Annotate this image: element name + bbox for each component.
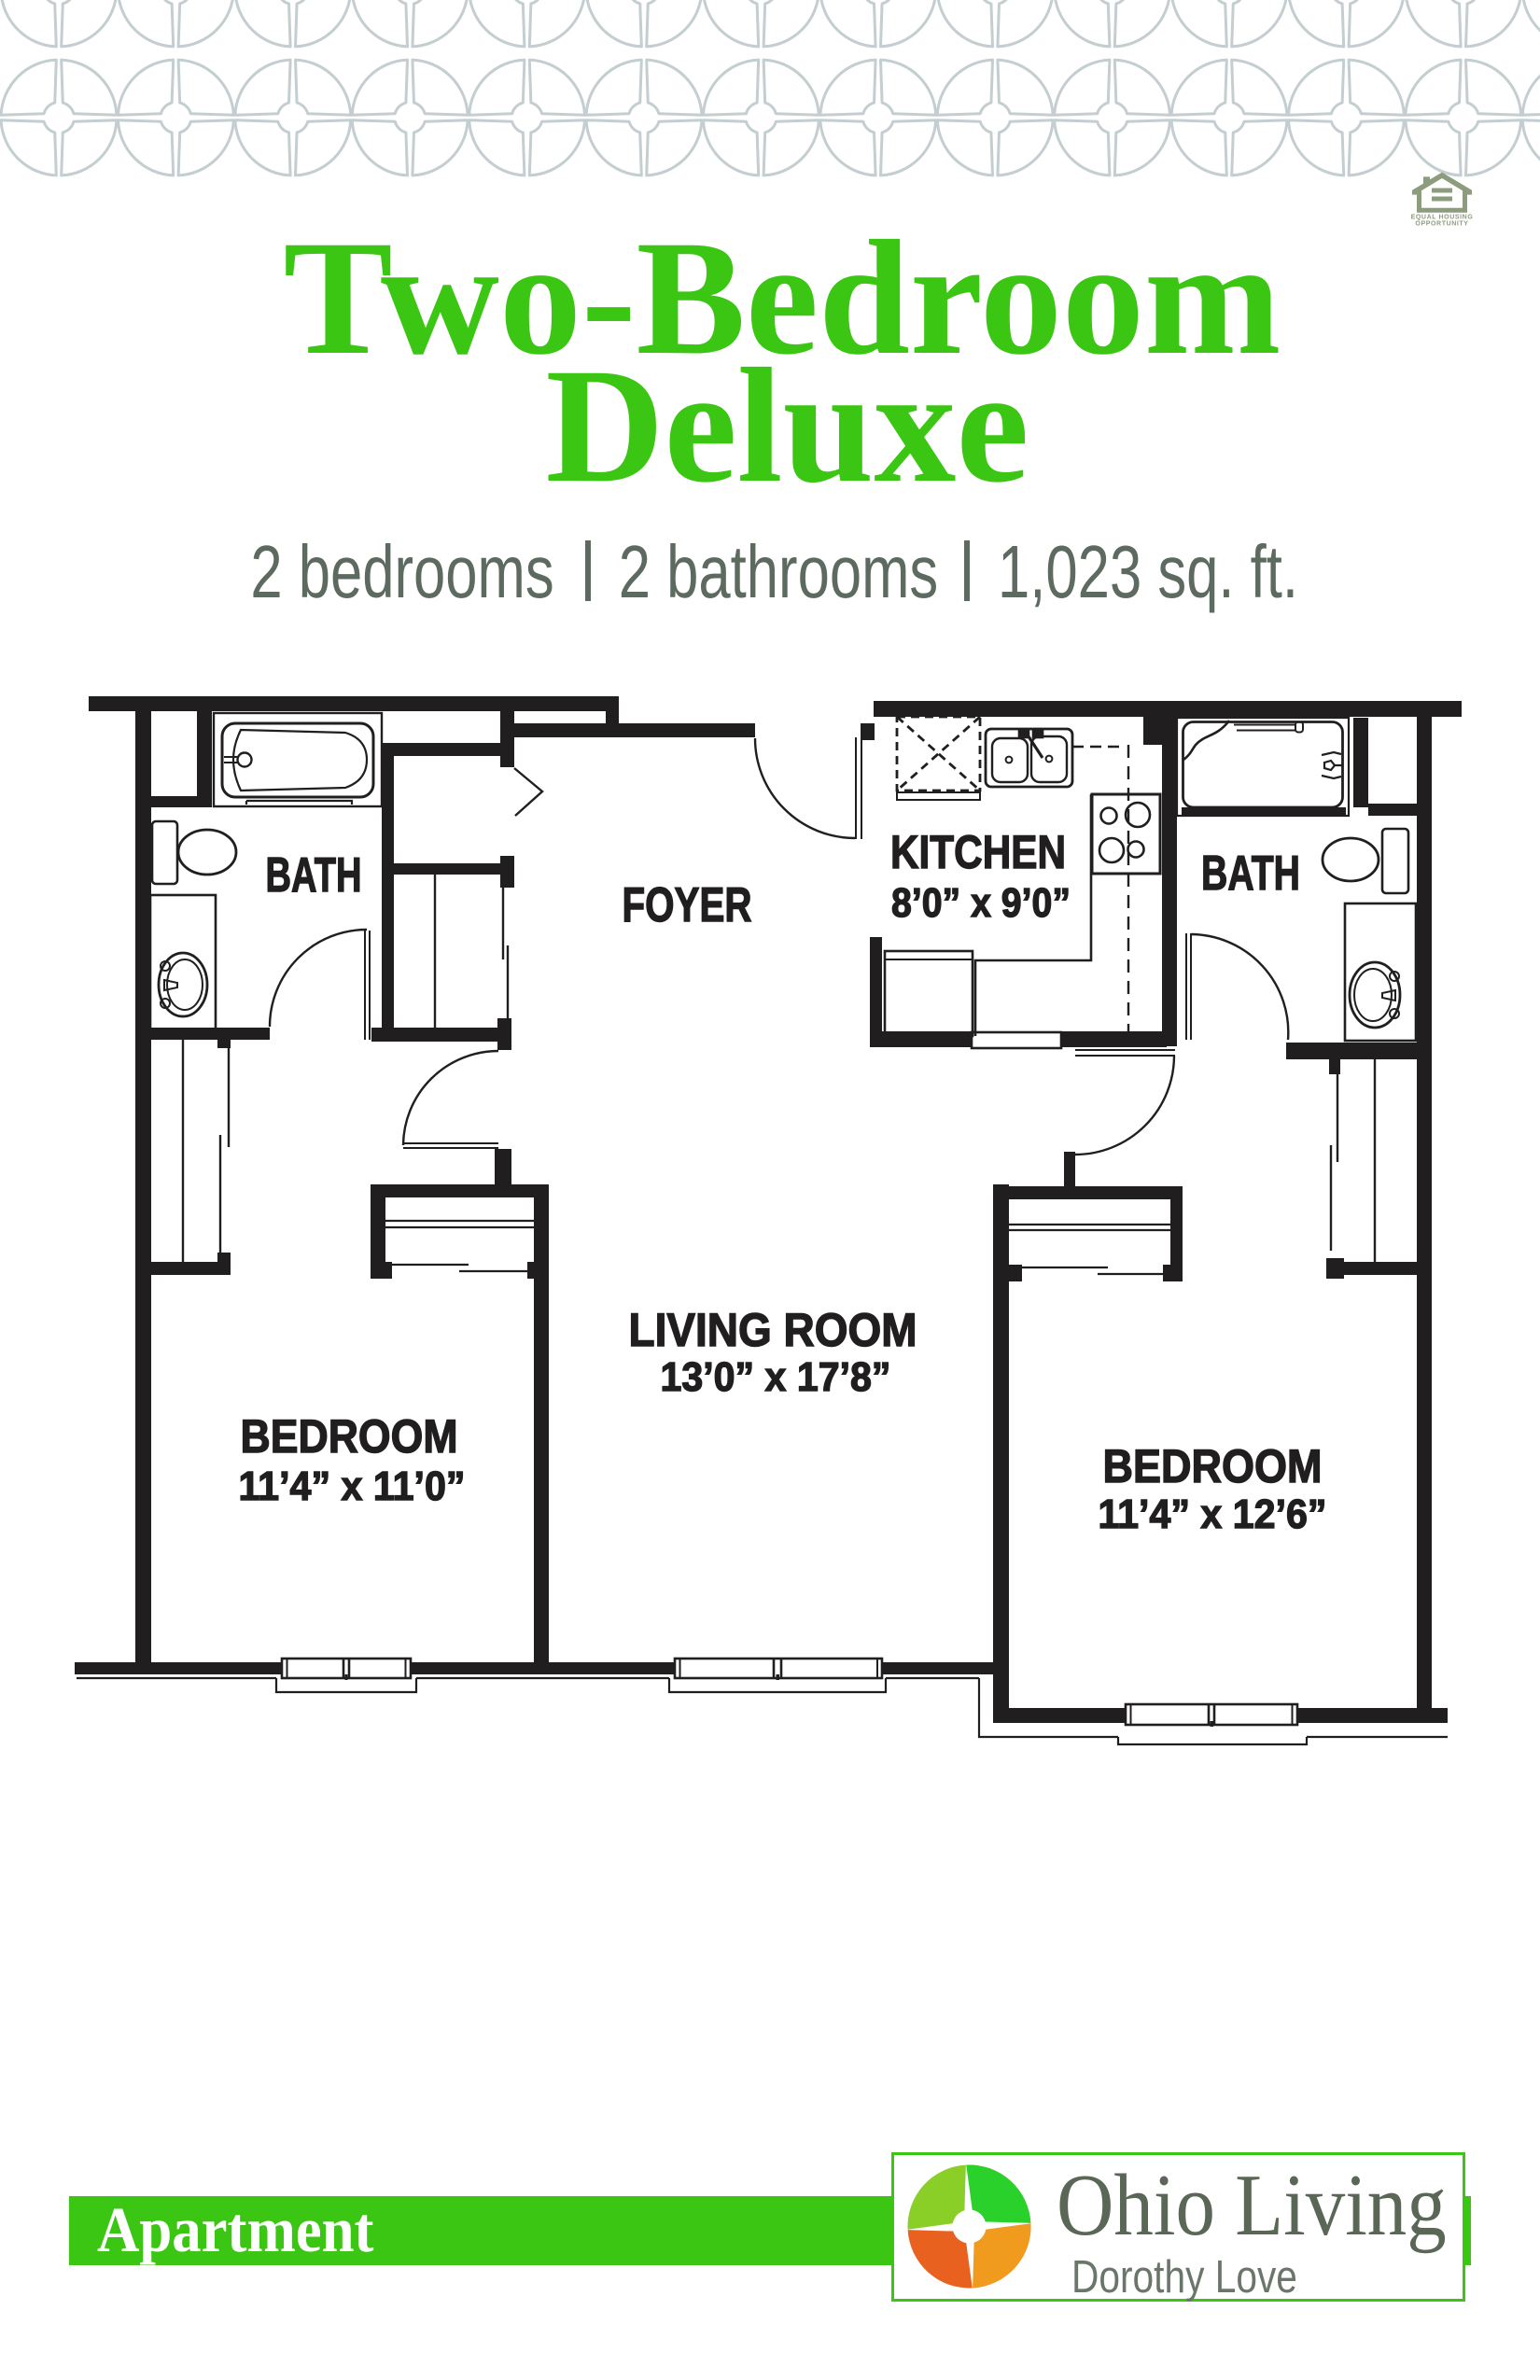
svg-text:BEDROOM: BEDROOM (241, 1410, 458, 1463)
svg-text:BEDROOM: BEDROOM (1103, 1440, 1323, 1492)
svg-text:11’4” x 11’0”: 11’4” x 11’0” (239, 1463, 466, 1509)
svg-text:BATH: BATH (1201, 847, 1300, 901)
svg-text:11’4” x 12’6”: 11’4” x 12’6” (1099, 1491, 1327, 1537)
svg-text:13’0” x 17’8”: 13’0” x 17’8” (661, 1354, 891, 1400)
svg-text:LIVING ROOM: LIVING ROOM (629, 1304, 917, 1356)
svg-text:8’0” x 9’0”: 8’0” x 9’0” (891, 880, 1071, 926)
svg-text:KITCHEN: KITCHEN (890, 826, 1066, 878)
svg-text:FOYER: FOYER (623, 878, 752, 932)
svg-text:BATH: BATH (266, 848, 362, 903)
